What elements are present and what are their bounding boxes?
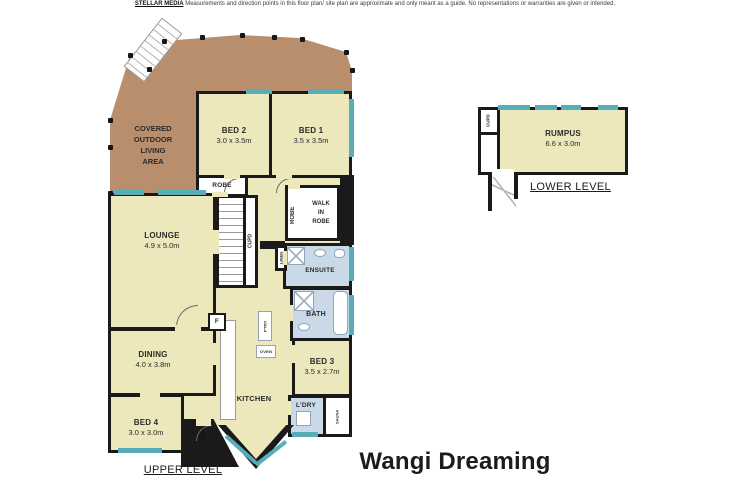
- room-lounge: [108, 193, 216, 330]
- room-label-dining: DINING 4.0 x 3.8m: [108, 349, 198, 371]
- room-label-walk-in-robe: WALK IN ROBE: [303, 191, 339, 235]
- door-gap: [287, 305, 293, 321]
- room-label-bath: BATH: [296, 309, 336, 321]
- deck-post: [128, 53, 133, 58]
- room-label-bed3: BED 3 3.5 x 2.7m: [292, 356, 352, 378]
- room-label-bed4: BED 4 3.0 x 3.0m: [108, 417, 184, 439]
- dining-dims: 4.0 x 3.8m: [135, 360, 170, 369]
- bed3-name: BED 3: [310, 357, 335, 367]
- room-label-robe: ROBE: [196, 177, 248, 195]
- window: [561, 105, 581, 110]
- door-gap: [175, 325, 201, 331]
- upper-level-floorplan: COVERED OUTDOOR LIVING AREA BED 2 3.0 x …: [100, 25, 365, 460]
- window: [292, 432, 318, 437]
- deck-post: [147, 67, 152, 72]
- deck-post: [200, 35, 205, 40]
- stub-wall: [488, 173, 492, 211]
- basin: [314, 249, 326, 257]
- basin: [298, 323, 310, 331]
- door-gap: [213, 343, 219, 365]
- door-gap: [276, 173, 292, 179]
- room-label-kitchen: KITCHEN: [224, 393, 284, 405]
- window: [498, 105, 530, 110]
- shower: [287, 247, 305, 265]
- deck-post: [162, 39, 167, 44]
- bed2-dims: 3.0 x 3.5m: [216, 136, 251, 145]
- deck-post: [300, 37, 305, 42]
- room-label-rumpus: RUMPUS 6.6 x 3.0m: [508, 127, 618, 151]
- bed3-dims: 3.5 x 2.7m: [304, 367, 339, 376]
- label-fridge: F: [208, 316, 226, 328]
- bed4-name: BED 4: [134, 418, 159, 428]
- room-label-laundry: L'DRY: [289, 400, 323, 412]
- window: [308, 89, 344, 94]
- lounge-name: LOUNGE: [144, 231, 179, 241]
- room-label-bed1: BED 1 3.5 x 3.5m: [272, 125, 350, 147]
- internal-stairs: [216, 195, 246, 288]
- washing-machine: [296, 411, 311, 426]
- room-label-bed2: BED 2 3.0 x 3.5m: [198, 125, 270, 147]
- deck-post: [272, 35, 277, 40]
- door-gap: [288, 183, 300, 189]
- rumpus-dims: 6.6 x 3.0m: [545, 139, 580, 148]
- entry-arrow-stem: [202, 436, 204, 443]
- room-label-lounge: LOUNGE 4.9 x 5.0m: [110, 230, 214, 252]
- window: [349, 247, 354, 281]
- room-label-ensuite: ENSUITE: [292, 265, 348, 277]
- bed4-dims: 3.0 x 3.0m: [128, 428, 163, 437]
- kitchen-bench: [220, 320, 236, 420]
- disclaimer-brand: STELLAR MEDIA: [135, 1, 184, 7]
- deck-post: [350, 68, 355, 73]
- room-label-covered-outdoor: COVERED OUTDOOR LIVING AREA: [112, 121, 194, 171]
- label-oven: OVEN: [256, 347, 276, 356]
- door-gap: [196, 419, 211, 426]
- rumpus-name: RUMPUS: [545, 129, 581, 139]
- lower-level-floorplan: CUPD RUMPUS 6.6 x 3.0m LOWER LEVEL: [468, 95, 650, 230]
- wall-block: [340, 175, 354, 245]
- deck-post: [240, 33, 245, 38]
- window: [349, 295, 354, 335]
- window: [535, 105, 557, 110]
- disclaimer: STELLAR MEDIA Measurements and direction…: [0, 1, 750, 7]
- window: [118, 448, 162, 453]
- lounge-dims: 4.9 x 5.0m: [144, 241, 179, 250]
- toilet: [334, 249, 345, 258]
- label-cupd-lower: CUPD: [480, 109, 496, 133]
- stair-opening: [492, 169, 514, 177]
- label-sauna: SAUNA: [331, 403, 343, 431]
- door-gap: [140, 391, 160, 397]
- bed1-dims: 3.5 x 3.5m: [293, 136, 328, 145]
- dining-name: DINING: [138, 350, 167, 360]
- entry-arrow-icon: [199, 429, 207, 436]
- window: [114, 190, 144, 195]
- label-cupd-upper: CUPD: [244, 221, 257, 261]
- label-robe-vertical: ROBE: [288, 197, 298, 233]
- kitchen-name: KITCHEN: [237, 394, 272, 403]
- bed1-name: BED 1: [299, 126, 324, 136]
- window: [246, 89, 272, 94]
- bed2-name: BED 2: [222, 126, 247, 136]
- window: [598, 105, 618, 110]
- disclaimer-text: Measurements and direction points in thi…: [185, 1, 615, 7]
- deck-post: [344, 50, 349, 55]
- deck-post: [108, 191, 113, 196]
- plan-title: Wangi Dreaming: [330, 448, 580, 476]
- upper-level-caption: UPPER LEVEL: [128, 464, 238, 476]
- shower: [294, 291, 314, 311]
- lower-level-caption: LOWER LEVEL: [513, 181, 628, 193]
- label-linen: LINEN: [276, 246, 286, 270]
- label-pantry: P'TRY: [259, 313, 271, 339]
